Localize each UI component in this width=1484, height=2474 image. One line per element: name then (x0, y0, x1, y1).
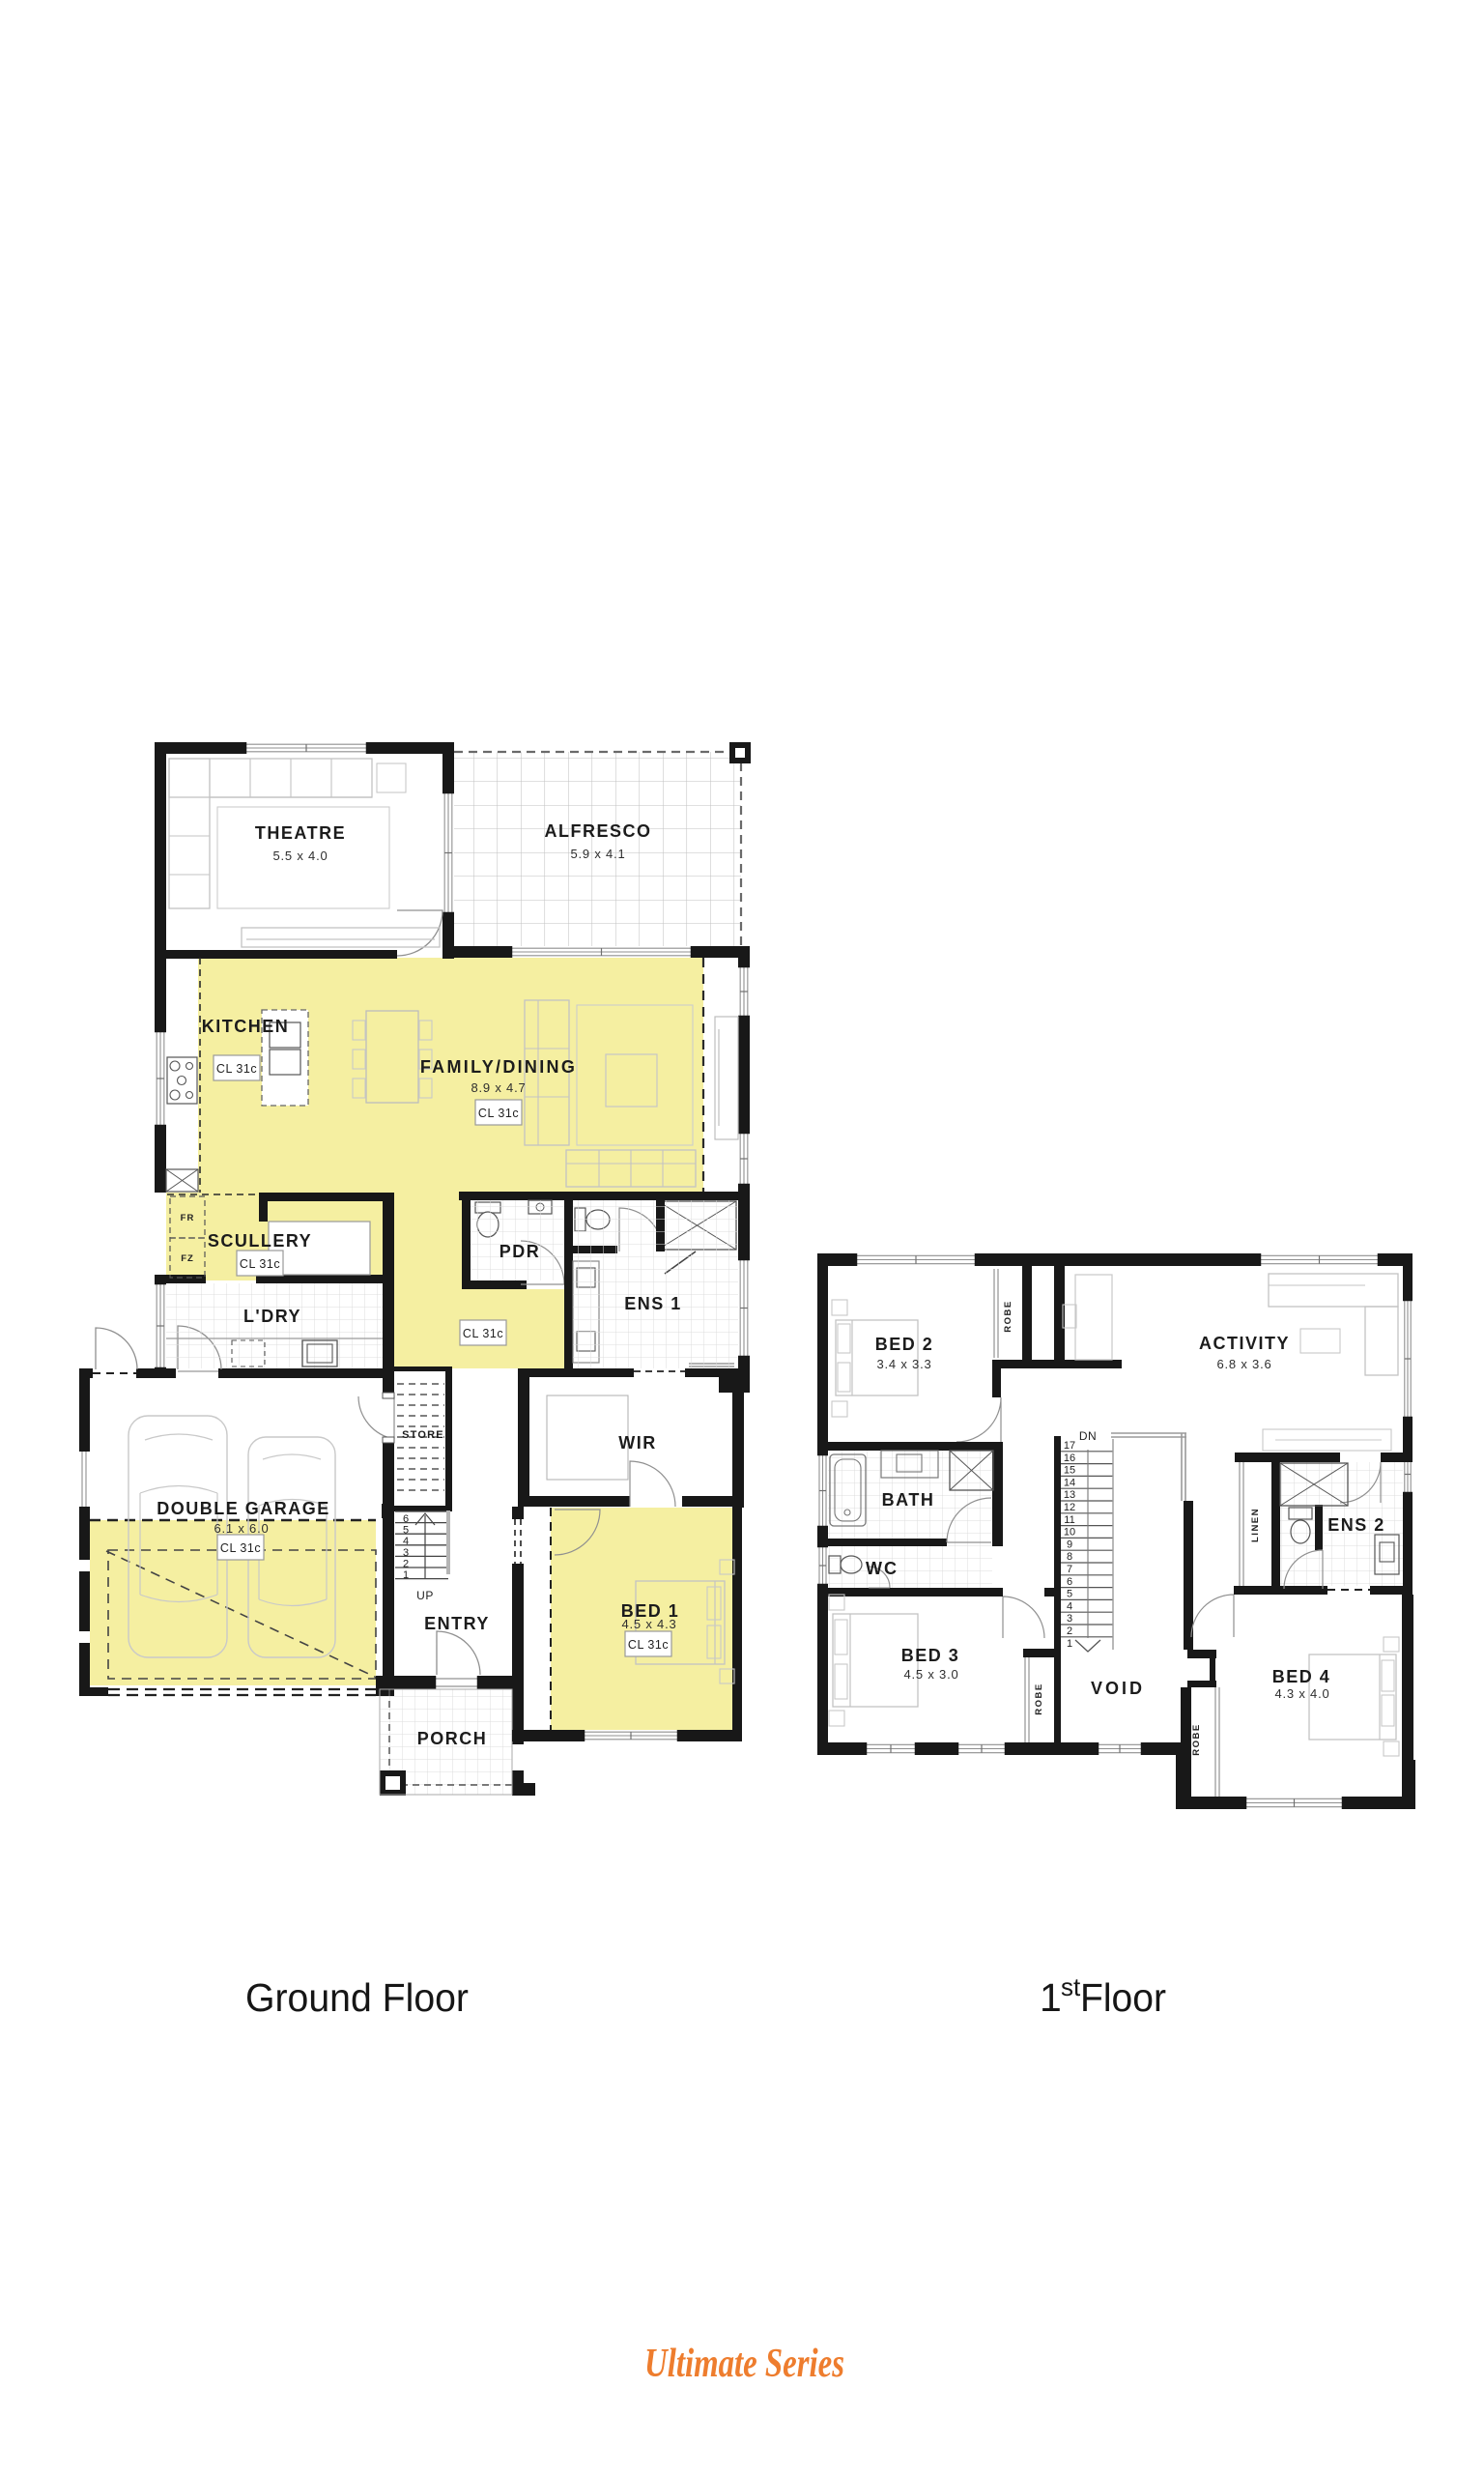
svg-text:3: 3 (1067, 1613, 1072, 1625)
svg-text:ROBE: ROBE (1003, 1300, 1013, 1332)
svg-text:1: 1 (403, 1569, 409, 1581)
svg-text:5.9 x 4.1: 5.9 x 4.1 (570, 847, 625, 861)
svg-text:STORE: STORE (402, 1429, 444, 1441)
svg-text:Ground Floor: Ground Floor (245, 1975, 469, 2020)
svg-text:st: st (1061, 1972, 1081, 2001)
svg-text:13: 13 (1064, 1489, 1075, 1501)
svg-text:CL 31c: CL 31c (478, 1107, 519, 1120)
svg-text:8.9 x 4.7: 8.9 x 4.7 (471, 1080, 526, 1095)
svg-text:1: 1 (1067, 1638, 1072, 1650)
svg-text:THEATRE: THEATRE (255, 823, 346, 843)
svg-text:4: 4 (403, 1536, 409, 1547)
svg-text:UP: UP (416, 1589, 434, 1602)
svg-text:3: 3 (403, 1547, 409, 1559)
svg-text:FAMILY/DINING: FAMILY/DINING (420, 1057, 577, 1077)
svg-text:12: 12 (1064, 1502, 1075, 1513)
svg-text:5: 5 (1067, 1589, 1072, 1600)
svg-text:6.1 x 6.0: 6.1 x 6.0 (214, 1521, 269, 1536)
svg-text:6: 6 (1067, 1576, 1072, 1588)
svg-text:L'DRY: L'DRY (243, 1307, 301, 1326)
svg-text:2: 2 (403, 1558, 409, 1569)
svg-text:1: 1 (1040, 1975, 1062, 2020)
svg-text:15: 15 (1064, 1465, 1075, 1477)
svg-text:10: 10 (1064, 1527, 1075, 1539)
svg-text:ENS 2: ENS 2 (1327, 1515, 1385, 1535)
svg-text:BATH: BATH (882, 1490, 935, 1510)
svg-text:CL 31c: CL 31c (220, 1541, 261, 1555)
svg-text:9: 9 (1067, 1539, 1072, 1550)
svg-text:3.4 x 3.3: 3.4 x 3.3 (876, 1357, 931, 1371)
svg-text:6.8 x 3.6: 6.8 x 3.6 (1216, 1357, 1271, 1371)
svg-text:KITCHEN: KITCHEN (202, 1017, 290, 1036)
svg-text:LINEN: LINEN (1250, 1508, 1261, 1542)
svg-text:Ultimate Series: Ultimate Series (644, 2342, 844, 2386)
svg-text:VOID: VOID (1091, 1679, 1145, 1698)
svg-text:DN: DN (1079, 1429, 1097, 1443)
svg-text:BED 3: BED 3 (901, 1646, 960, 1665)
svg-text:4: 4 (1067, 1600, 1072, 1612)
svg-text:BED 4: BED 4 (1272, 1667, 1331, 1686)
svg-text:CL 31c: CL 31c (463, 1327, 503, 1340)
svg-text:BED 2: BED 2 (875, 1335, 934, 1354)
svg-text:ROBE: ROBE (1034, 1683, 1044, 1714)
svg-text:CL 31c: CL 31c (240, 1257, 280, 1271)
svg-text:ACTIVITY: ACTIVITY (1199, 1334, 1290, 1353)
svg-text:PORCH: PORCH (417, 1729, 488, 1748)
svg-text:SCULLERY: SCULLERY (208, 1231, 312, 1251)
svg-text:11: 11 (1064, 1514, 1074, 1526)
svg-text:6: 6 (403, 1513, 409, 1525)
svg-text:16: 16 (1064, 1453, 1075, 1464)
svg-text:WIR: WIR (618, 1433, 657, 1453)
svg-text:Floor: Floor (1080, 1975, 1166, 2020)
svg-text:FR: FR (181, 1213, 195, 1223)
svg-text:5.5 x 4.0: 5.5 x 4.0 (272, 849, 328, 863)
svg-text:WC: WC (866, 1559, 899, 1578)
svg-text:CL 31c: CL 31c (628, 1638, 669, 1652)
svg-text:ROBE: ROBE (1191, 1723, 1202, 1755)
svg-text:DOUBLE GARAGE: DOUBLE GARAGE (157, 1499, 330, 1518)
svg-text:ENS 1: ENS 1 (624, 1294, 682, 1313)
svg-text:4.5 x 3.0: 4.5 x 3.0 (903, 1667, 958, 1682)
svg-text:FZ: FZ (181, 1253, 194, 1264)
svg-text:8: 8 (1067, 1551, 1072, 1563)
svg-text:PDR: PDR (499, 1242, 541, 1261)
svg-text:7: 7 (1067, 1564, 1072, 1575)
svg-text:14: 14 (1064, 1477, 1075, 1488)
svg-text:CL 31c: CL 31c (216, 1062, 257, 1076)
svg-text:ENTRY: ENTRY (424, 1614, 490, 1633)
svg-text:5: 5 (403, 1525, 409, 1537)
svg-text:4.3 x 4.0: 4.3 x 4.0 (1274, 1686, 1329, 1701)
svg-text:2: 2 (1067, 1625, 1072, 1637)
svg-text:ALFRESCO: ALFRESCO (545, 821, 652, 841)
svg-text:4.5 x 4.3: 4.5 x 4.3 (621, 1617, 676, 1631)
svg-text:17: 17 (1064, 1440, 1075, 1452)
